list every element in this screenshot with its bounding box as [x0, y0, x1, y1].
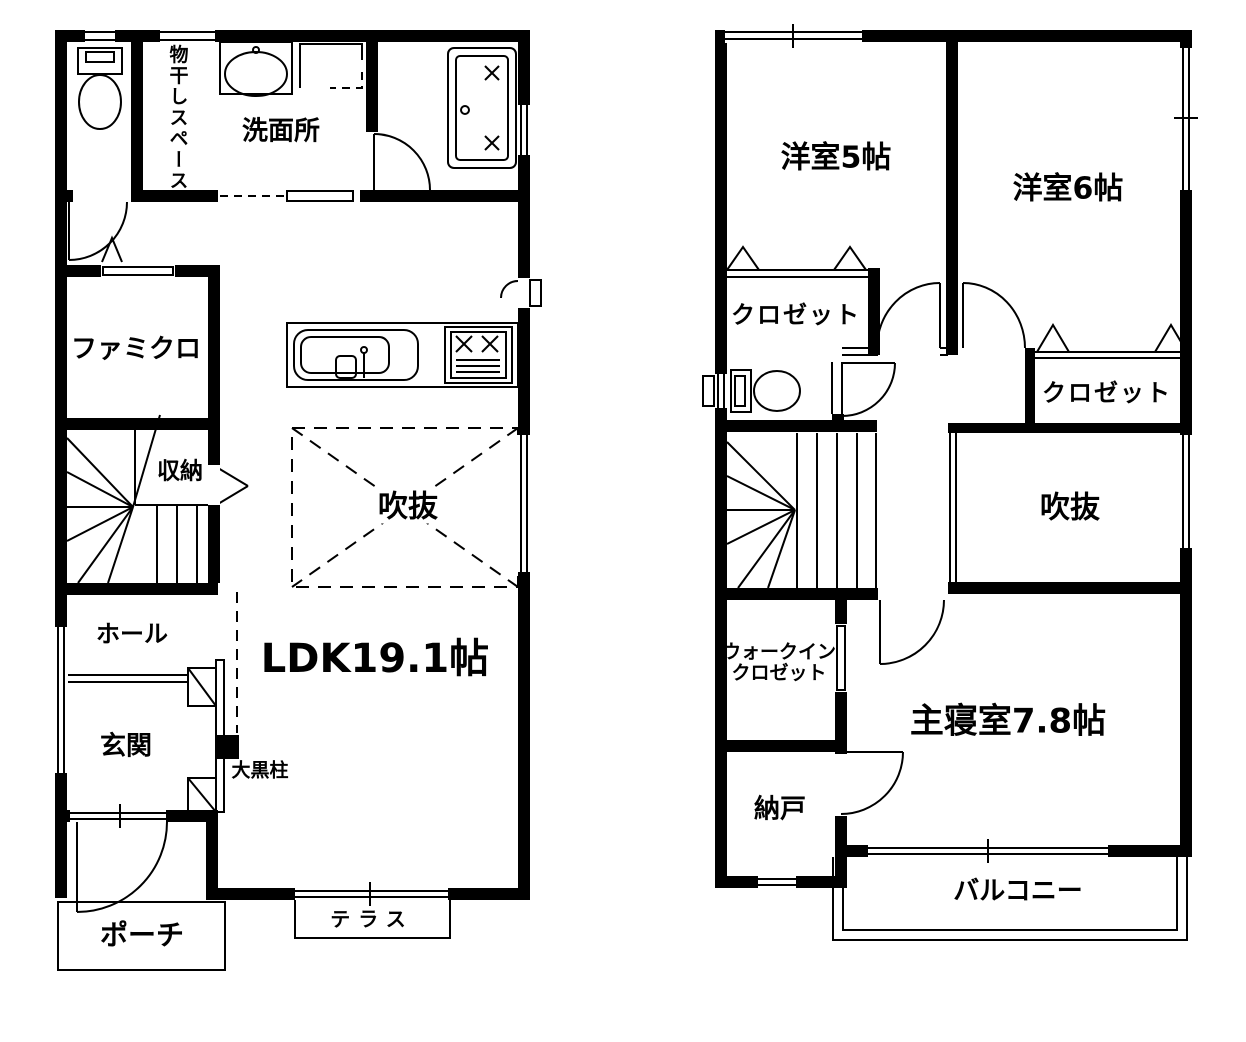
label-walk-in-closet: ウォークイン クロゼット [722, 642, 836, 684]
label-porch: ポーチ [100, 921, 184, 952]
label-walk-in-closet-line1: ウォークイン [722, 642, 836, 663]
hall-partition [842, 348, 948, 355]
void-railing-2f [950, 433, 956, 582]
main-pillar-icon [217, 735, 239, 759]
entrance-door-arc [77, 822, 167, 912]
bathtub-icon [448, 48, 516, 168]
toilet-icon [731, 370, 800, 412]
label-closet-a: クロゼット [731, 302, 861, 328]
washbasin-icon [220, 42, 292, 96]
label-entrance: 玄関 [100, 733, 152, 762]
label-master-bedroom: 主寝室7.8帖 [910, 703, 1106, 740]
label-western-room-6: 洋室6帖 [1013, 173, 1124, 206]
floorplan-canvas: 物干しスペース 洗面所 ファミクロ 収納 吹抜 ホール 玄関 大黒柱 LDK19… [0, 0, 1246, 1042]
label-closet-b: クロゼット [1042, 380, 1172, 406]
door-arc [841, 752, 903, 814]
closet-folding-door [727, 247, 868, 277]
label-ldk: LDK19.1帖 [261, 637, 489, 681]
door-arc [880, 600, 944, 664]
label-washroom: 洗面所 [242, 118, 320, 147]
label-laundry-space: 物干しスペース [167, 45, 188, 192]
label-family-closet: ファミクロ [71, 336, 201, 365]
windows-doors-1f [58, 32, 541, 912]
label-terrace: テラス [330, 908, 414, 930]
door-arc [832, 362, 895, 416]
kitchen-counter-icon [287, 323, 518, 387]
stairs-1f [67, 415, 248, 583]
label-balcony: バルコニー [953, 878, 1082, 907]
label-walk-in-closet-line2: クロゼット [722, 663, 836, 684]
closet-folding-door [1035, 325, 1187, 358]
entrance-step [67, 675, 188, 682]
label-void-1f: 吹抜 [375, 491, 441, 524]
door-arc [963, 283, 1025, 348]
floor1-plan [54, 29, 541, 970]
door-arc [877, 283, 940, 348]
door-arc [374, 134, 430, 190]
label-hall: ホール [96, 621, 168, 647]
label-storage: 収納 [154, 459, 206, 484]
toilet-icon [78, 48, 122, 129]
label-main-pillar: 大黒柱 [231, 761, 288, 782]
washing-machine-icon [300, 44, 362, 88]
stove-icon [445, 327, 512, 383]
label-western-room-5: 洋室5帖 [781, 142, 892, 175]
stairs-2f [727, 433, 876, 588]
fixtures-1f [58, 42, 518, 970]
label-void-2f: 吹抜 [1040, 492, 1100, 525]
label-storeroom: 納戸 [754, 796, 806, 825]
